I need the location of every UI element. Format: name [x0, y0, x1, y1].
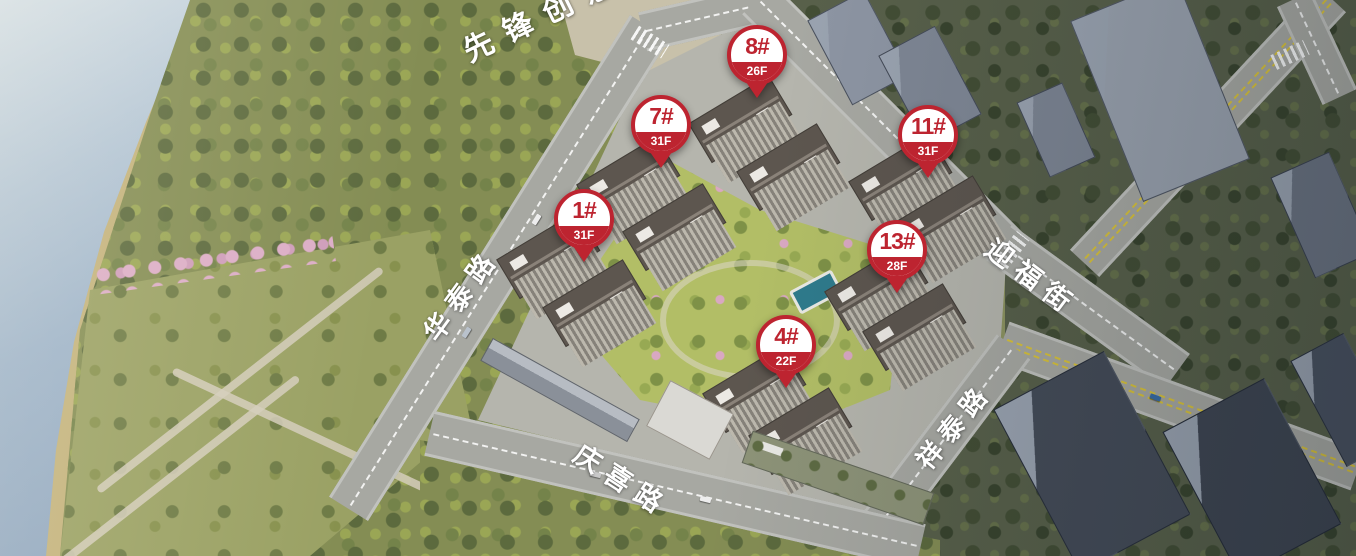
pin-tail: [775, 372, 797, 388]
pin-building-4[interactable]: 4# 22F: [756, 315, 816, 388]
pin-floors: 22F: [760, 352, 812, 371]
pin-floors: 26F: [731, 62, 783, 81]
pin-tail: [746, 82, 768, 98]
pin-circle: 4# 22F: [756, 315, 816, 375]
pin-tail: [917, 162, 939, 178]
pin-tail: [650, 152, 672, 168]
pin-number: 7#: [635, 99, 687, 132]
pin-circle: 7# 31F: [631, 95, 691, 155]
pin-building-7[interactable]: 7# 31F: [631, 95, 691, 168]
pin-number: 8#: [731, 29, 783, 62]
pin-number: 11#: [902, 109, 954, 142]
pin-building-1[interactable]: 1# 31F: [554, 189, 614, 262]
pin-number: 13#: [871, 224, 923, 257]
pin-building-8[interactable]: 13# 28F: [867, 220, 927, 293]
pin-floors: 31F: [635, 132, 687, 151]
pin-floors: 31F: [902, 142, 954, 161]
pin-tail: [886, 277, 908, 293]
pin-circle: 1# 31F: [554, 189, 614, 249]
pin-floors: 28F: [871, 257, 923, 276]
pin-circle: 13# 28F: [867, 220, 927, 280]
pin-building-11[interactable]: 8# 26F: [727, 25, 787, 98]
pin-building-13[interactable]: 11# 31F: [898, 105, 958, 178]
aerial-masterplan: 先锋创意 华泰路 迎福街 祥泰路 庆喜路 1# 31F 4# 22F 7# 31…: [0, 0, 1356, 556]
pin-floors: 31F: [558, 226, 610, 245]
pin-number: 1#: [558, 193, 610, 226]
pin-circle: 8# 26F: [727, 25, 787, 85]
pin-tail: [573, 246, 595, 262]
pin-number: 4#: [760, 319, 812, 352]
pin-circle: 11# 31F: [898, 105, 958, 165]
